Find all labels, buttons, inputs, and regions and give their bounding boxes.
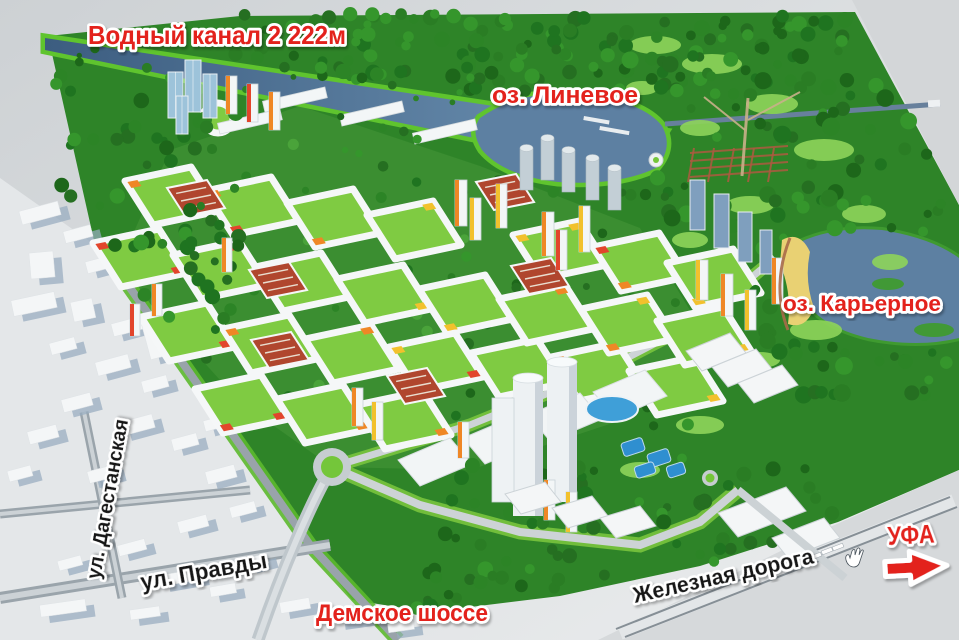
tree <box>649 421 658 430</box>
tree <box>817 360 829 372</box>
tree <box>921 149 932 160</box>
tree <box>822 118 840 136</box>
tree <box>217 312 230 325</box>
tree <box>742 29 753 40</box>
tree <box>185 236 197 248</box>
tree <box>488 571 498 581</box>
tree <box>874 356 884 366</box>
tree <box>800 464 809 473</box>
map-image: Водный канал 2 222м оз. Линевое оз. Карь… <box>0 0 959 640</box>
tower-accent <box>226 76 230 114</box>
tree <box>833 384 851 402</box>
tree <box>207 144 217 154</box>
tree <box>164 154 178 168</box>
tree <box>337 113 344 120</box>
tree <box>211 325 220 334</box>
tree <box>222 275 232 285</box>
tree <box>336 64 351 79</box>
label-lake-karyernoe: оз. Карьерное <box>783 291 941 316</box>
tree <box>625 189 637 201</box>
tree <box>672 539 681 548</box>
tree <box>686 31 696 41</box>
tree <box>807 159 817 169</box>
tree <box>825 506 839 520</box>
tree <box>54 178 69 193</box>
tree <box>854 155 864 165</box>
tree <box>619 25 634 40</box>
small-roundabout-lawn <box>706 474 715 483</box>
tree <box>876 89 894 107</box>
tree <box>548 186 559 197</box>
tree <box>399 127 409 137</box>
tree <box>808 341 820 353</box>
tree <box>924 210 932 218</box>
tree <box>445 69 460 84</box>
tree <box>438 527 453 542</box>
tree <box>133 235 149 251</box>
tree <box>134 93 150 109</box>
tree <box>598 229 608 239</box>
silo-top <box>520 145 533 152</box>
tree <box>664 210 681 227</box>
tree <box>446 494 458 506</box>
tree <box>682 419 694 431</box>
silo-tower <box>541 138 554 180</box>
tree <box>351 37 360 46</box>
tree <box>865 124 876 135</box>
tree <box>388 81 397 90</box>
tree <box>590 467 598 475</box>
tree <box>760 333 776 349</box>
tree <box>940 356 953 369</box>
roundabout-lawn <box>321 456 343 478</box>
tree <box>531 22 544 35</box>
tower-accent <box>696 260 700 300</box>
silo-top <box>608 165 621 172</box>
tree <box>789 347 803 361</box>
tree <box>586 520 600 534</box>
tree <box>466 74 474 82</box>
tree <box>527 518 538 529</box>
tree <box>770 207 785 222</box>
tree <box>466 388 476 398</box>
tree <box>845 222 857 234</box>
tower-accent <box>455 180 459 226</box>
tree <box>732 103 740 111</box>
tree <box>548 25 560 37</box>
tree <box>681 182 689 190</box>
pavilion-lawn <box>653 157 659 163</box>
tree <box>474 575 488 589</box>
tree <box>797 201 810 214</box>
tree <box>562 548 577 563</box>
glass-tower <box>760 230 772 274</box>
tree <box>454 470 469 485</box>
tree <box>361 27 376 42</box>
tree <box>395 8 407 20</box>
silo-tower <box>520 148 533 190</box>
tree <box>662 56 678 72</box>
tree <box>810 493 821 504</box>
tree <box>142 63 152 73</box>
label-lake-linevoe: оз. Линевое <box>492 82 638 109</box>
tree <box>650 170 665 185</box>
tower-accent <box>745 290 749 330</box>
silo-top <box>541 135 554 142</box>
tree <box>413 96 419 102</box>
tree <box>456 89 462 95</box>
tree <box>461 251 471 261</box>
tree <box>714 543 726 555</box>
tree <box>239 9 251 21</box>
tree <box>924 376 933 385</box>
tree <box>720 16 731 27</box>
tree <box>744 536 758 550</box>
tower-accent <box>470 198 474 240</box>
tower-accent <box>772 258 776 304</box>
tree <box>516 43 528 55</box>
tree <box>645 52 659 66</box>
tree <box>211 257 219 265</box>
tree <box>785 75 797 87</box>
tree <box>840 73 854 87</box>
tree <box>712 132 722 142</box>
tree <box>562 65 577 80</box>
tree <box>430 571 442 583</box>
tree <box>718 34 727 43</box>
silo-top <box>586 155 599 162</box>
building <box>29 251 55 279</box>
tree <box>279 62 290 73</box>
forest-clearing <box>794 139 854 161</box>
tree <box>510 58 524 72</box>
tree <box>723 52 738 67</box>
tree <box>365 7 379 21</box>
tree <box>128 120 141 133</box>
tree <box>111 133 124 146</box>
tree <box>355 150 362 157</box>
tree <box>434 32 450 48</box>
tree <box>898 354 913 369</box>
tree <box>661 193 669 201</box>
tree <box>803 481 815 493</box>
silo-tower <box>608 168 621 210</box>
tree <box>755 43 765 53</box>
tree <box>846 91 856 101</box>
tree <box>450 99 456 105</box>
tree <box>618 38 633 53</box>
silo-tower <box>586 158 599 200</box>
tree <box>365 50 378 63</box>
tree <box>675 72 685 82</box>
tree <box>65 86 76 97</box>
tree <box>110 188 125 203</box>
tree <box>291 74 297 80</box>
tree <box>444 590 454 600</box>
tree <box>723 480 734 491</box>
tree <box>827 342 838 353</box>
label-water-canal: Водный канал 2 222м <box>88 20 346 50</box>
tree <box>553 551 563 561</box>
tree <box>918 227 928 237</box>
tree <box>214 220 224 230</box>
tower-accent <box>542 212 546 256</box>
tree <box>363 20 371 28</box>
tree <box>446 9 461 24</box>
tree <box>332 304 340 312</box>
tree <box>687 104 696 113</box>
pier-tip <box>928 100 940 108</box>
tower-accent <box>222 238 226 272</box>
lake-island <box>872 278 904 290</box>
tree <box>766 461 781 476</box>
tree <box>694 20 710 36</box>
tree <box>754 118 766 130</box>
tree <box>138 288 152 302</box>
tree <box>430 9 439 18</box>
tree <box>818 15 834 31</box>
tree <box>200 279 214 293</box>
tree <box>654 80 669 95</box>
tree <box>515 580 528 593</box>
tower-accent <box>152 284 156 316</box>
tree <box>376 192 387 203</box>
tree <box>820 79 836 95</box>
tree <box>815 386 828 399</box>
label-city-ufa: УФА <box>887 519 936 551</box>
tree <box>230 184 239 193</box>
tree <box>469 33 484 48</box>
tree <box>821 190 838 207</box>
tower-accent <box>579 206 583 252</box>
tree <box>710 88 721 99</box>
tree <box>451 411 461 421</box>
tree <box>671 298 680 307</box>
tree <box>403 31 414 42</box>
tree <box>928 348 936 356</box>
glass-tower <box>714 194 729 248</box>
tree <box>687 50 698 61</box>
tree <box>607 36 617 46</box>
tree <box>50 78 62 90</box>
tree <box>846 163 861 178</box>
tree <box>890 352 899 361</box>
tree <box>465 458 480 473</box>
tree <box>699 495 711 507</box>
tree <box>577 11 591 25</box>
tree <box>380 13 391 24</box>
tree <box>159 140 174 155</box>
tree <box>808 16 819 27</box>
tree <box>887 223 896 232</box>
tree <box>837 12 853 28</box>
tree <box>357 73 368 84</box>
tree <box>827 220 843 236</box>
tree <box>589 62 599 72</box>
tree <box>77 53 82 58</box>
building <box>70 298 96 322</box>
tower-accent <box>130 304 134 336</box>
tree <box>75 58 84 67</box>
tree <box>741 65 751 75</box>
tree <box>474 47 490 63</box>
tree <box>635 497 645 507</box>
tree <box>754 72 771 89</box>
tree <box>834 47 842 55</box>
tree <box>409 14 419 24</box>
tree <box>802 181 815 194</box>
tree <box>706 71 716 81</box>
tower-accent <box>721 274 725 316</box>
tree <box>801 27 816 42</box>
cylinder-top <box>547 357 577 367</box>
tree <box>197 202 205 210</box>
tree <box>190 251 199 260</box>
tree <box>774 126 792 144</box>
tree <box>342 147 348 153</box>
silo-tower <box>562 150 575 192</box>
tree <box>493 52 503 62</box>
tree <box>379 124 387 132</box>
tree <box>622 52 639 69</box>
tree <box>773 27 782 36</box>
tree <box>861 195 872 206</box>
tower-accent <box>247 84 251 122</box>
tree <box>736 467 751 482</box>
tree <box>696 550 705 559</box>
tree <box>183 203 197 217</box>
tree <box>463 17 477 31</box>
cylinder-shade <box>569 362 577 502</box>
tree <box>289 51 299 61</box>
tree <box>744 88 757 101</box>
tree <box>651 32 662 43</box>
tree <box>87 133 99 145</box>
aquapark-building <box>586 396 638 422</box>
tree <box>64 189 77 202</box>
tree <box>875 158 887 170</box>
forest-clearing <box>872 254 908 270</box>
tree <box>108 238 122 252</box>
tree <box>475 539 487 551</box>
tree <box>412 177 421 186</box>
tower-accent <box>352 388 356 426</box>
tree <box>769 194 782 207</box>
tree <box>157 239 167 249</box>
tree <box>315 62 327 74</box>
lake-island <box>914 323 954 337</box>
tree <box>163 311 175 323</box>
tree <box>378 161 389 172</box>
tree <box>200 121 213 134</box>
tower-accent <box>372 402 376 440</box>
tree <box>188 142 202 156</box>
tree <box>499 13 511 25</box>
tree <box>898 143 911 156</box>
tree <box>904 385 919 400</box>
tree <box>302 187 309 194</box>
tree <box>151 132 162 143</box>
masterplan-map: Водный канал 2 222м оз. Линевое оз. Карь… <box>0 0 959 640</box>
tree <box>601 48 615 62</box>
tree <box>413 135 422 144</box>
tree <box>835 357 853 375</box>
tree <box>525 564 535 574</box>
tree <box>836 35 848 47</box>
label-demskoe-highway: Демское шоссе <box>316 600 488 627</box>
tree <box>837 199 849 211</box>
tree <box>474 73 486 85</box>
tree <box>599 570 610 581</box>
tree <box>551 45 561 55</box>
tree <box>656 514 671 529</box>
tree <box>288 139 299 150</box>
tree <box>401 41 410 50</box>
tower-accent <box>496 184 500 228</box>
tree <box>67 133 81 147</box>
tree <box>251 51 264 64</box>
tree <box>461 62 473 74</box>
tree <box>552 573 565 586</box>
tree <box>670 84 684 98</box>
tree <box>773 60 782 69</box>
glass-tower <box>690 180 705 230</box>
glass-tower <box>738 212 752 262</box>
tree <box>728 88 739 99</box>
tree <box>485 66 499 80</box>
tree <box>451 534 460 543</box>
tree <box>776 10 789 23</box>
tree <box>96 202 104 210</box>
tree <box>640 189 651 200</box>
cylinder-top <box>513 373 543 383</box>
tree <box>470 498 480 508</box>
tree <box>801 71 816 86</box>
forest-clearing <box>842 205 886 223</box>
tower-accent <box>269 92 273 130</box>
tree <box>583 283 590 290</box>
tower-accent <box>458 422 462 458</box>
tree <box>659 17 670 28</box>
tree <box>501 556 511 566</box>
tree <box>920 386 929 395</box>
tree <box>232 240 244 252</box>
tree <box>936 199 946 209</box>
silo-top <box>562 147 575 154</box>
forest-clearing <box>672 232 708 248</box>
tree <box>394 66 407 79</box>
tree <box>343 55 353 65</box>
tree <box>370 67 384 81</box>
tree <box>792 48 806 62</box>
tower-accent <box>556 230 560 270</box>
tower-building <box>492 398 514 502</box>
tree <box>563 24 577 38</box>
tree <box>900 113 917 130</box>
tree <box>840 348 849 357</box>
tree <box>143 161 152 170</box>
